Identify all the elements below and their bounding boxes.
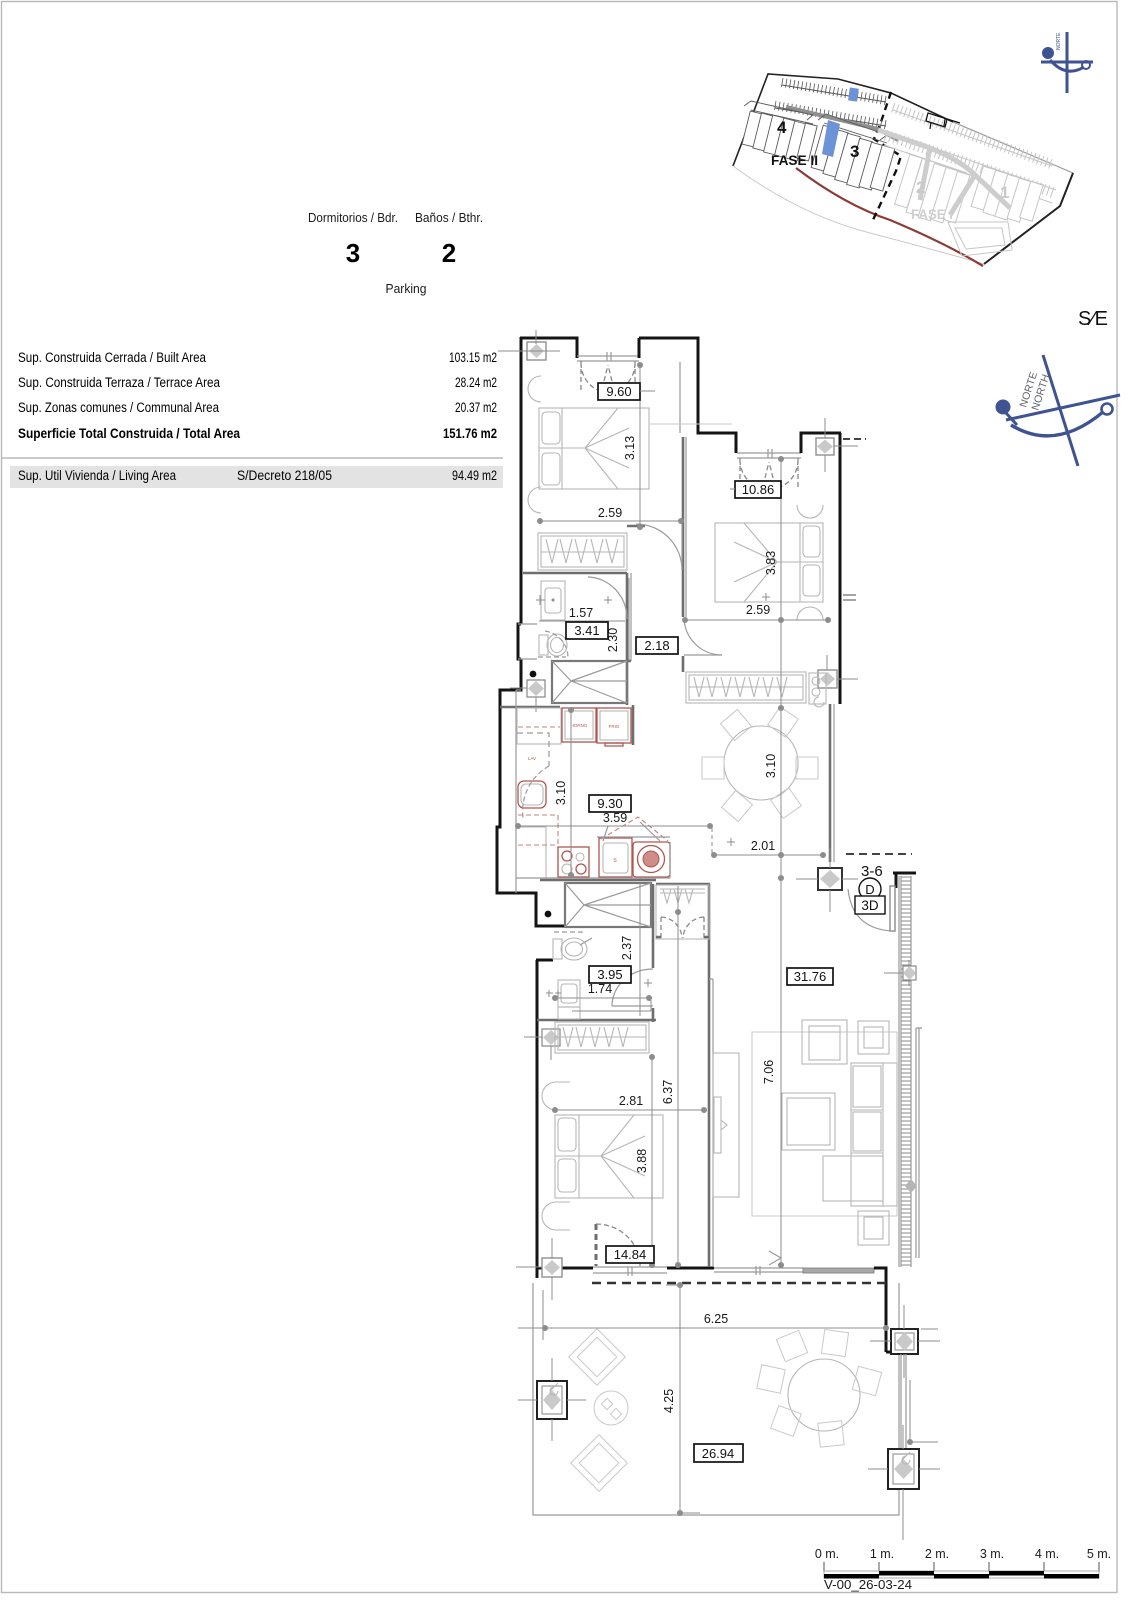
svg-text:151.76 m2: 151.76 m2 [443, 426, 497, 441]
svg-text:3.88: 3.88 [635, 1149, 649, 1173]
svg-text:Sup. Construida Cerrada / Buil: Sup. Construida Cerrada / Built Area [18, 350, 206, 365]
svg-text:HORNO: HORNO [571, 723, 588, 728]
svg-text:1 m.: 1 m. [870, 1547, 894, 1561]
svg-text:10.86: 10.86 [742, 482, 775, 497]
svg-text:S/Decreto 218/05: S/Decreto 218/05 [237, 468, 332, 483]
svg-text:1: 1 [1000, 183, 1009, 202]
svg-text:NORTE: NORTE [1056, 32, 1062, 50]
svg-text:103.15 m2: 103.15 m2 [449, 350, 497, 365]
svg-text:3: 3 [850, 142, 859, 161]
svg-text:2.01: 2.01 [751, 839, 775, 853]
svg-text:3.13: 3.13 [623, 436, 637, 460]
svg-text:2.37: 2.37 [620, 936, 634, 960]
svg-text:2: 2 [442, 238, 456, 268]
svg-text:3.41: 3.41 [574, 623, 599, 638]
svg-text:4 m.: 4 m. [1035, 1547, 1059, 1561]
svg-text:Sup. Util Vivienda / Living Ar: Sup. Util Vivienda / Living Area [18, 468, 176, 483]
svg-text:Sup. Zonas comunes / Communal: Sup. Zonas comunes / Communal Area [18, 400, 219, 415]
svg-text:Dormitorios / Bdr.: Dormitorios / Bdr. [308, 211, 398, 225]
svg-text:0 m.: 0 m. [815, 1547, 839, 1561]
svg-text:2: 2 [916, 178, 925, 197]
svg-text:31.76: 31.76 [794, 969, 827, 984]
svg-text:3.95: 3.95 [597, 967, 622, 982]
svg-text:LAV: LAV [528, 756, 536, 761]
svg-text:14.84: 14.84 [614, 1247, 647, 1262]
svg-text:20.37 m2: 20.37 m2 [455, 400, 497, 415]
svg-text:Sup. Construida Terraza / Terr: Sup. Construida Terraza / Terrace Area [18, 375, 220, 390]
svg-text:28.24 m2: 28.24 m2 [455, 375, 497, 390]
svg-text:2.59: 2.59 [598, 506, 622, 520]
svg-text:26.94: 26.94 [702, 1446, 735, 1461]
svg-text:2.59: 2.59 [746, 603, 770, 617]
svg-text:Superficie Total Construida /: Superficie Total Construida / Total Area [18, 426, 240, 441]
svg-text:V-00_26-03-24: V-00_26-03-24 [824, 1578, 912, 1592]
svg-text:3D: 3D [861, 898, 879, 913]
svg-text:5 m.: 5 m. [1087, 1547, 1111, 1561]
svg-text:2.18: 2.18 [644, 638, 669, 653]
svg-text:Baños / Bthr.: Baños / Bthr. [415, 211, 483, 225]
svg-text:3.10: 3.10 [764, 754, 778, 778]
svg-text:2 m.: 2 m. [925, 1547, 949, 1561]
svg-text:9.30: 9.30 [597, 796, 622, 811]
svg-text:3.83: 3.83 [764, 551, 778, 575]
svg-text:1.57: 1.57 [569, 606, 593, 620]
svg-text:1.74: 1.74 [588, 982, 612, 996]
svg-text:FASE I: FASE I [911, 207, 953, 222]
svg-text:7.06: 7.06 [762, 1060, 776, 1084]
svg-text:3 m.: 3 m. [980, 1547, 1004, 1561]
svg-text:3.59: 3.59 [603, 811, 627, 825]
svg-text:3.10: 3.10 [554, 781, 568, 805]
svg-text:4: 4 [777, 118, 787, 137]
svg-text:2.81: 2.81 [619, 1094, 643, 1108]
svg-text:FASE II: FASE II [771, 153, 818, 168]
svg-text:94.49 m2: 94.49 m2 [452, 468, 497, 483]
svg-text:6.37: 6.37 [661, 1080, 675, 1104]
svg-text:6.25: 6.25 [704, 1312, 728, 1326]
svg-text:4.25: 4.25 [662, 1389, 676, 1413]
svg-text:FRIG: FRIG [609, 724, 620, 729]
svg-text:Parking: Parking [386, 282, 427, 296]
svg-text:S∕E: S∕E [1078, 308, 1108, 330]
svg-text:3: 3 [346, 238, 360, 268]
svg-text:D: D [865, 882, 874, 897]
svg-text:9.60: 9.60 [606, 384, 631, 399]
